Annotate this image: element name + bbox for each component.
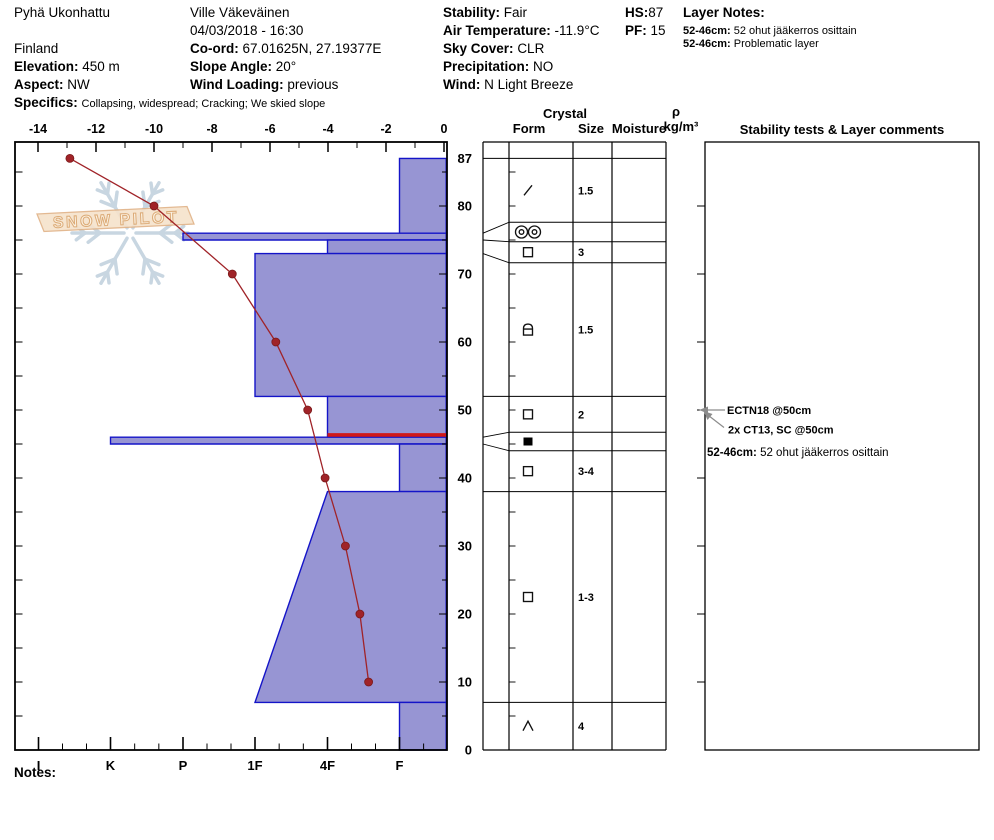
depth-label: 50 (458, 403, 472, 418)
grain-symbol-square (524, 410, 533, 419)
temperature-point (228, 270, 236, 278)
thin-layer-connector (483, 240, 509, 242)
header-density-unit: kg/m³ (664, 119, 699, 134)
grain-size-value: 2 (578, 409, 584, 421)
depth-label: 0 (465, 743, 472, 758)
layer-bar-DF-87-76 (400, 158, 447, 233)
grain-symbol-double-circle (516, 226, 528, 238)
layer-bar-FC-52-46 (328, 396, 447, 437)
snowpilot-report: { "header": { "site": "Pyhä Ukonhattu", … (0, 0, 994, 840)
grain-size-value: 3-4 (578, 466, 595, 478)
depth-label: 20 (458, 607, 472, 622)
stability-test-annotations: ECTN18 @50cm2x CT13, SC @50cm52-46cm: 52… (699, 405, 889, 459)
hardness-tick-label: 1F (247, 758, 262, 773)
layer-bar-FC-45-38 (400, 444, 447, 492)
grain-size-value: 3 (578, 247, 584, 259)
temperature-point (150, 202, 158, 210)
depth-label: 70 (458, 267, 472, 282)
grain-size-value: 4 (578, 721, 585, 733)
snowpilot-watermark: SNOW PILOT (37, 183, 194, 283)
grain-symbol-double-circle (532, 230, 537, 235)
header-size: Size (578, 121, 604, 136)
layer-bar-FC-38-7 (255, 492, 446, 703)
temp-tick-label: -10 (145, 122, 163, 136)
depth-label: 60 (458, 335, 472, 350)
comments-border (705, 142, 979, 750)
temperature-point (321, 474, 329, 482)
thin-layer-connector (483, 444, 509, 451)
temp-tick-label: -6 (264, 122, 275, 136)
depth-label: 30 (458, 539, 472, 554)
thin-layer-connector (483, 222, 509, 233)
grain-size-value: 1.5 (578, 185, 593, 197)
temp-tick-label: -12 (87, 122, 105, 136)
hardness-tick-label: I (37, 758, 41, 773)
temperature-point (341, 542, 349, 550)
grain-symbol-square (524, 593, 533, 602)
depth-label: 87 (458, 151, 472, 166)
temp-tick-label: -8 (206, 122, 217, 136)
temperature-point (365, 678, 373, 686)
thin-layer-connector (483, 432, 509, 437)
layer-table: CrystalFormSizeMoistureρkg/m³1.531.523-4… (483, 104, 699, 750)
temp-tick-label: -4 (322, 122, 333, 136)
layer-bar-DH-7-0 (400, 702, 447, 750)
layer-bar-FC-75-73 (328, 240, 447, 254)
temperature-point (66, 154, 74, 162)
hardness-tick-label: F (396, 758, 404, 773)
snowflake-icon (72, 183, 188, 283)
stability-test-ct: 2x CT13, SC @50cm (728, 425, 834, 437)
depth-label: 40 (458, 471, 472, 486)
test-arrow-line (709, 416, 725, 428)
header-crystal: Crystal (543, 106, 587, 121)
grain-size-value: 1.5 (578, 325, 593, 337)
hardness-bars (111, 158, 447, 750)
layer-comment: 52-46cm: 52 ohut jääkerros osittain (707, 447, 889, 459)
header-moisture: Moisture (612, 121, 666, 136)
grain-symbol-slash (524, 185, 532, 195)
temp-tick-label: -14 (29, 122, 47, 136)
temp-tick-label: 0 (441, 122, 448, 136)
grain-symbol-filled-square (524, 438, 533, 446)
header-comments: Stability tests & Layer comments (740, 122, 944, 137)
header-density-rho: ρ (672, 104, 680, 119)
depth-label: 80 (458, 199, 472, 214)
grain-size-value: 1-3 (578, 592, 594, 604)
temperature-point (272, 338, 280, 346)
temperature-point (356, 610, 364, 618)
grain-symbol-caret (523, 721, 533, 731)
layer-bar-IF-46-45 (111, 437, 447, 444)
header-form: Form (513, 121, 546, 136)
hardness-tick-label: K (106, 758, 116, 773)
temperature-point (304, 406, 312, 414)
grain-symbol-square (524, 467, 533, 476)
temp-tick-label: -2 (380, 122, 391, 136)
snow-profile-chart: SNOW PILOT-14-12-10-8-6-4-20IKP1F4FF8780… (0, 0, 994, 840)
stability-test-ect: ECTN18 @50cm (727, 405, 811, 417)
depth-label: 10 (458, 675, 472, 690)
grain-symbol-double-circle (519, 230, 524, 235)
hardness-tick-label: P (179, 758, 188, 773)
layer-bar-MFcr-76-75 (183, 233, 446, 240)
thin-layer-connector (483, 254, 509, 263)
grain-symbol-square (524, 248, 533, 257)
layer-bar-FCxr-73-52 (255, 254, 446, 397)
hardness-tick-label: 4F (320, 758, 335, 773)
grain-symbol-double-circle (529, 226, 541, 238)
